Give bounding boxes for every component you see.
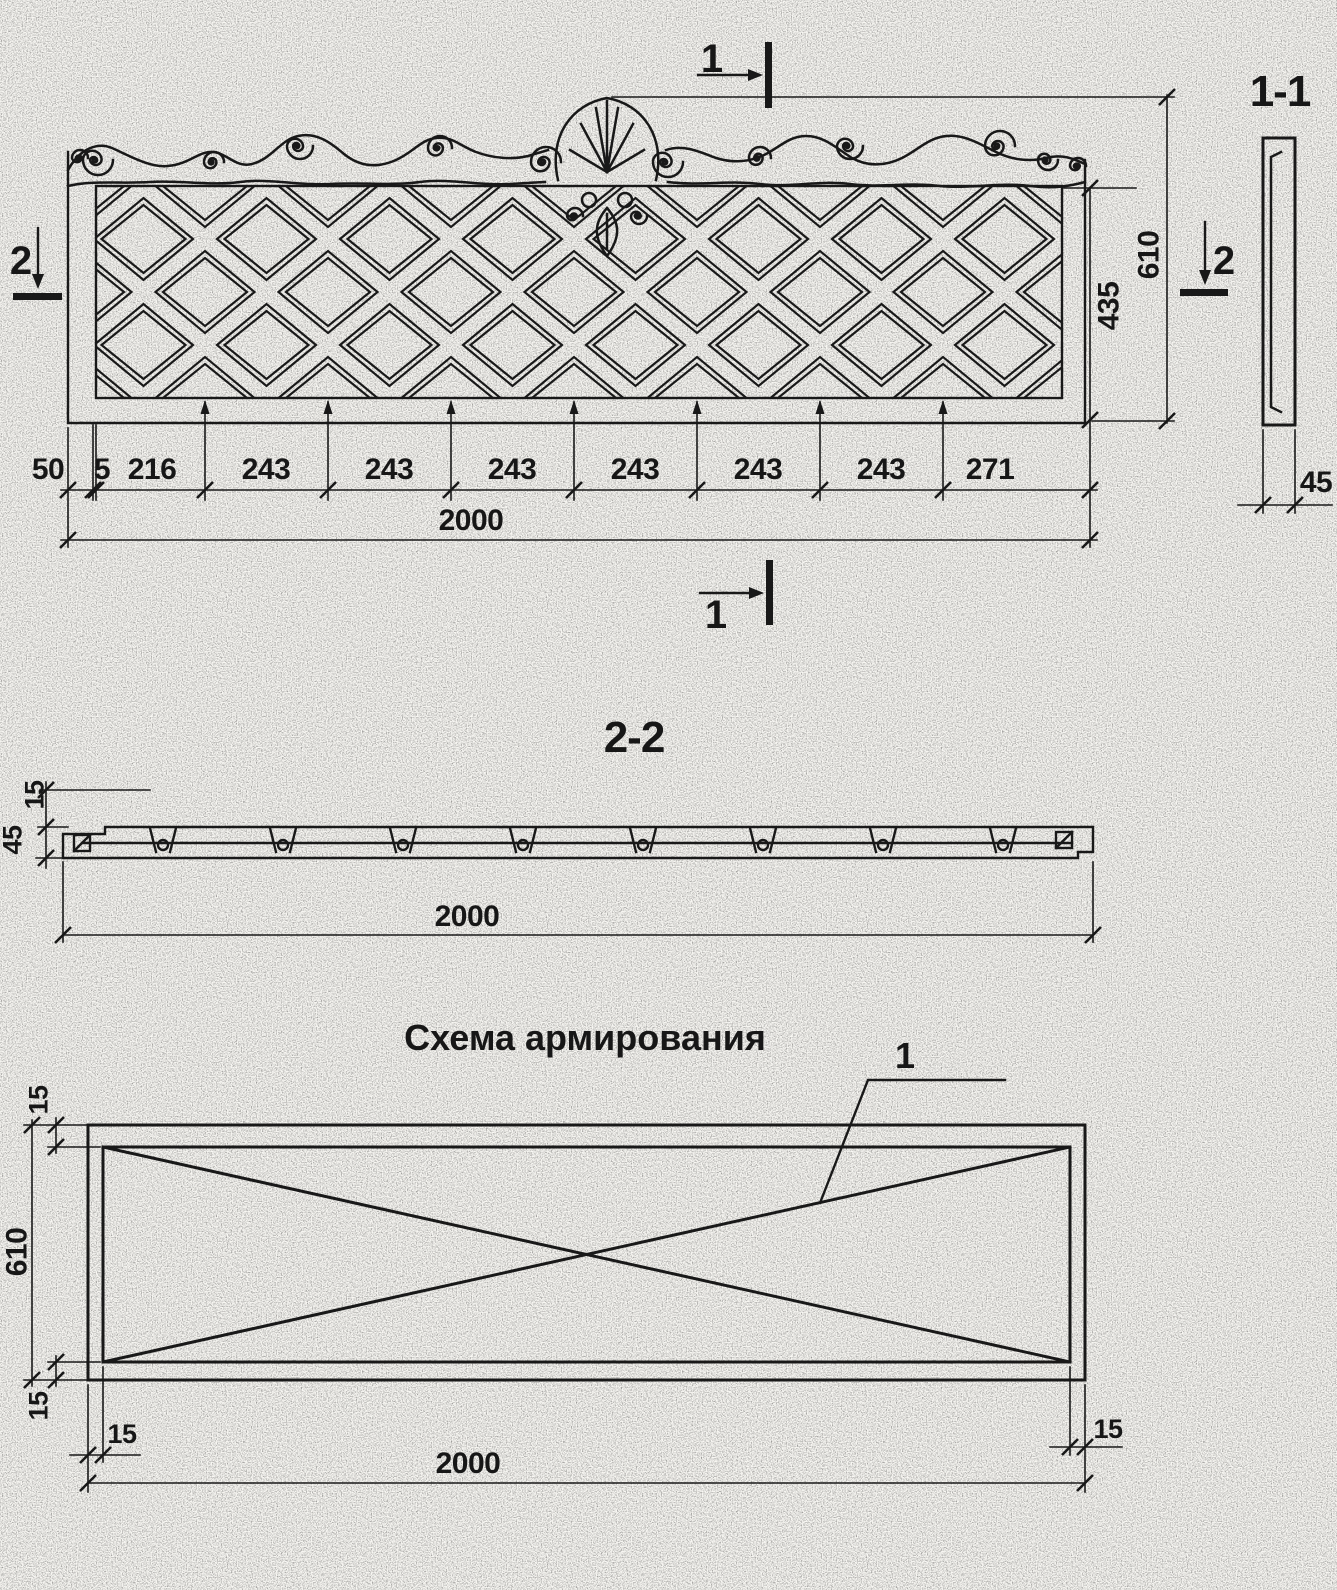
section-label-2-right: 2 <box>1213 239 1235 283</box>
section-label-2-left: 2 <box>10 239 32 283</box>
segment-dimension-labels: 50 5 216 243 243 243 243 243 243 271 <box>32 453 1014 486</box>
spiral-icon <box>72 150 88 162</box>
diamond-lattice <box>96 186 1062 398</box>
scheme-height-label: 610 <box>1 1228 34 1277</box>
callout-leader <box>820 1080 1005 1203</box>
scheme-diagonal-bars <box>103 1147 1070 1362</box>
callout-label: 1 <box>895 1035 915 1076</box>
scheme-cover-top-label: 15 <box>23 1085 53 1115</box>
lattice-height-label: 435 <box>1093 282 1126 331</box>
scheme-cover-right-label: 15 <box>1093 1414 1123 1444</box>
scheme-panel-outline <box>88 1125 1085 1380</box>
spiral-icon <box>204 152 224 168</box>
total-length-label: 2000 <box>439 504 504 537</box>
lattice-pointer-arrows <box>201 400 948 414</box>
scheme-dim-lines <box>24 1118 1122 1492</box>
dim-label: 243 <box>365 453 414 486</box>
section-1-1-outline <box>1263 138 1295 425</box>
dim-label: 216 <box>128 453 177 486</box>
section-1-1-thickness-label: 45 <box>1300 466 1332 499</box>
reinforcement-scheme: Схема армирования 1 15 610 15 15 <box>1 1017 1123 1492</box>
dim-label: 50 <box>32 453 64 486</box>
total-height-label: 610 <box>1133 231 1166 280</box>
section-cut-bar-left <box>13 293 62 300</box>
shell-rays <box>570 101 644 172</box>
rebar-anchor-plates <box>74 832 1072 851</box>
front-view: 1 1 2 2 50 5 216 243 243 243 243 243 243… <box>10 37 1235 637</box>
dim-label: 243 <box>488 453 537 486</box>
section-cut-bar-bottom <box>766 560 773 625</box>
section-cut-bar-top <box>765 42 772 108</box>
dim-label: 243 <box>611 453 660 486</box>
scanned-drawing-sheet: 1 1 2 2 50 5 216 243 243 243 243 243 243… <box>0 0 1337 1590</box>
section-2-2-thickness-label: 45 <box>0 825 27 855</box>
arrow-down-icon <box>32 274 44 289</box>
section-1-1-title: 1-1 <box>1250 67 1311 116</box>
dim-label: 243 <box>242 453 291 486</box>
scheme-length-label: 2000 <box>436 1447 501 1480</box>
crest-upper-contour-right <box>666 136 1085 165</box>
section-2-2-notches <box>150 828 1016 852</box>
section-2-2-title: 2-2 <box>604 713 665 762</box>
spiral-icon <box>985 131 1015 155</box>
section-2-2-lip-label: 15 <box>19 780 49 810</box>
arrow-right-icon <box>748 69 763 81</box>
dim-label: 243 <box>857 453 906 486</box>
dim-label: 271 <box>966 453 1015 486</box>
section-label-1-top: 1 <box>701 37 723 81</box>
arrow-down-icon <box>1199 270 1211 285</box>
spiral-icon <box>287 139 313 159</box>
scheme-cover-bottom-label: 15 <box>23 1391 53 1421</box>
section-2-2-view: 2-2 15 45 2000 <box>0 713 1093 942</box>
crest-upper-contour-left <box>68 135 548 170</box>
scheme-title: Схема армирования <box>404 1017 766 1058</box>
section-label-1-bottom: 1 <box>705 593 727 637</box>
section-2-2-dim-lines <box>36 782 1093 942</box>
section-2-2-length-label: 2000 <box>435 900 500 933</box>
dim-label: 5 <box>94 453 110 486</box>
section-1-1-rebar <box>1271 152 1281 412</box>
dim-label: 243 <box>734 453 783 486</box>
scheme-cover-left-label: 15 <box>107 1419 137 1449</box>
section-1-1-view: 1-1 45 <box>1238 67 1332 513</box>
section-cut-bar-right <box>1180 289 1228 296</box>
arrow-right-icon <box>749 587 764 599</box>
drawing-canvas: 1 1 2 2 50 5 216 243 243 243 243 243 243… <box>0 0 1337 1590</box>
